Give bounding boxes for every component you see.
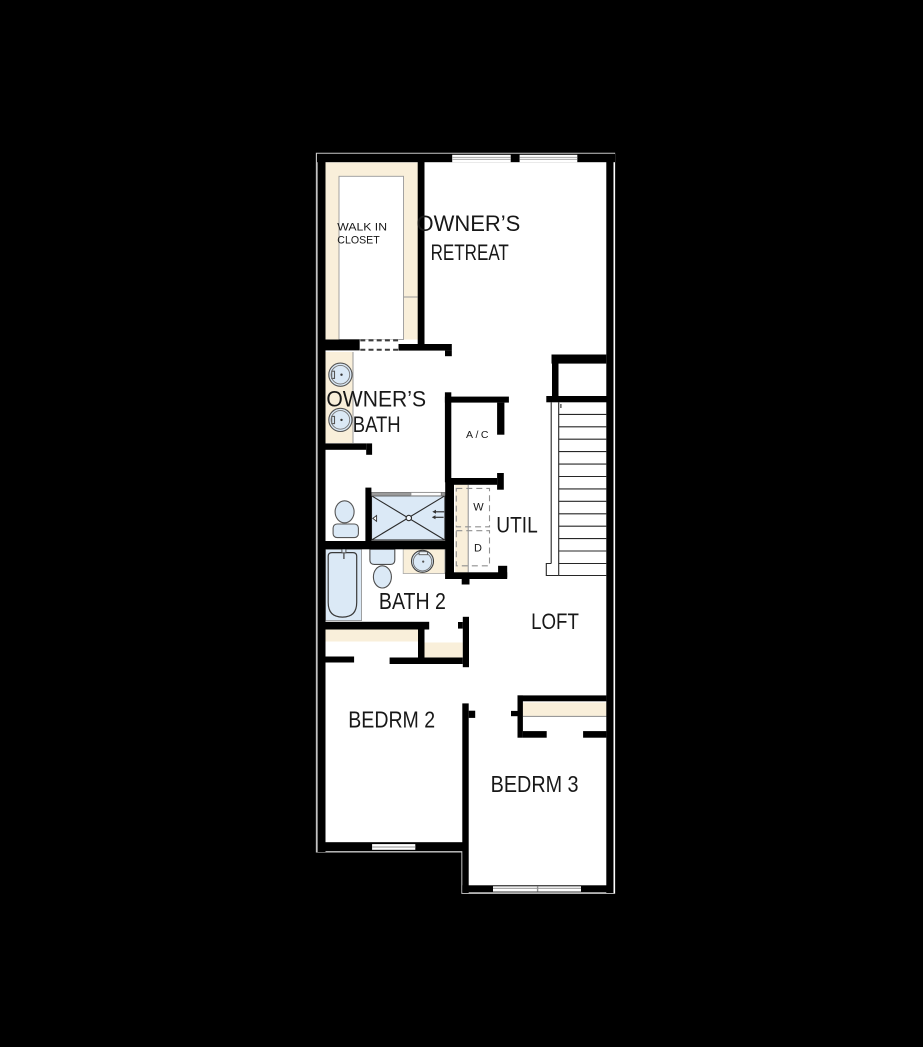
svg-text:BEDRM 2: BEDRM 2	[348, 707, 435, 733]
svg-text:W: W	[473, 501, 484, 513]
svg-text:A/C: A/C	[466, 429, 491, 441]
svg-text:WALK IN: WALK IN	[337, 221, 387, 233]
svg-text:OWNER’S: OWNER’S	[326, 386, 426, 412]
svg-text:CLOSET: CLOSET	[337, 234, 380, 246]
svg-text:UTIL: UTIL	[496, 513, 537, 538]
svg-text:BATH 2: BATH 2	[379, 589, 446, 615]
svg-text:BATH: BATH	[353, 414, 401, 438]
svg-text:RETREAT: RETREAT	[431, 241, 509, 266]
svg-text:LOFT: LOFT	[531, 611, 579, 635]
svg-text:BEDRM 3: BEDRM 3	[491, 772, 579, 798]
svg-text:OWNER’S: OWNER’S	[416, 211, 520, 236]
svg-text:D: D	[474, 542, 482, 554]
